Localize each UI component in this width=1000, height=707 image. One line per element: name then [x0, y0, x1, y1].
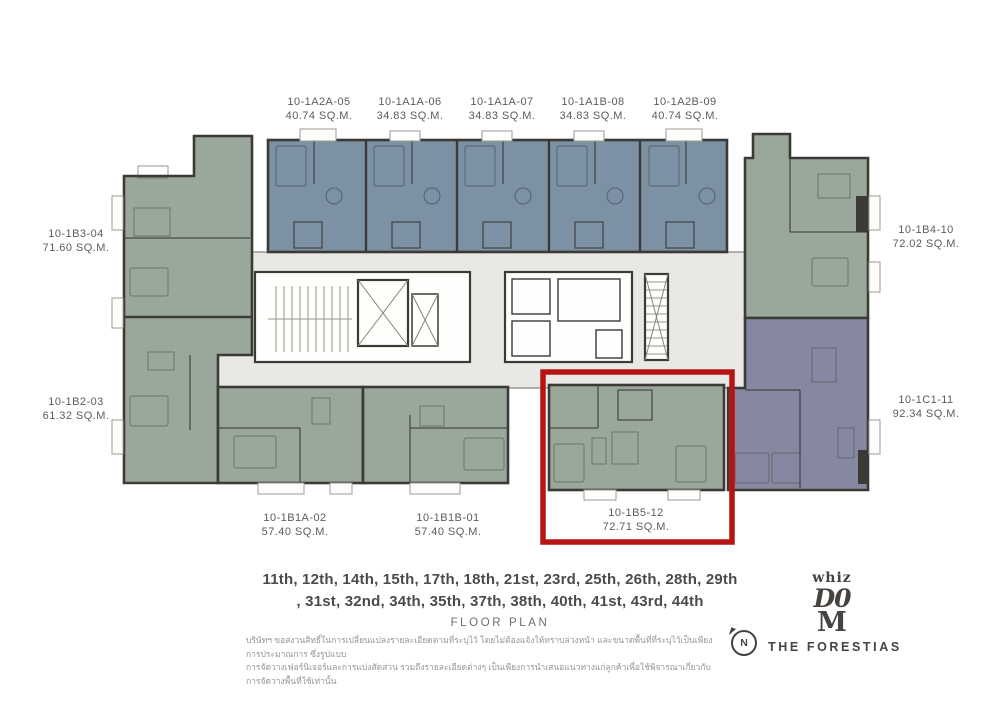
- unit-area: 34.83 SQ.M.: [469, 110, 536, 124]
- unit-label-10-1C1-11[interactable]: 10-1C1-11 92.34 SQ.M.: [893, 394, 960, 421]
- logo-line-m: M: [770, 609, 894, 636]
- unit-id: 10-1A2A-05: [286, 96, 353, 110]
- unit-area: 40.74 SQ.M.: [286, 110, 353, 124]
- unit-id: 10-1B3-04: [43, 228, 110, 242]
- unit-region-10-1B1A-02[interactable]: [218, 387, 363, 483]
- floor-plan-page: 10-1A2A-05 40.74 SQ.M. 10-1A1A-06 34.83 …: [0, 0, 1000, 707]
- core-left-block: [255, 272, 470, 362]
- unit-label-10-1B5-12[interactable]: 10-1B5-12 72.71 SQ.M.: [603, 507, 670, 534]
- unit-region-10-1B5-12[interactable]: [549, 385, 724, 490]
- unit-area: 57.40 SQ.M.: [415, 526, 482, 540]
- unit-id: 10-1B1A-02: [262, 512, 329, 526]
- shaft-block-top-right: [856, 196, 867, 232]
- unit-id: 10-1B5-12: [603, 507, 670, 521]
- unit-area: 71.60 SQ.M.: [43, 242, 110, 256]
- compass-north-label: N: [740, 637, 748, 649]
- core-right-stair: [645, 274, 668, 360]
- unit-id: 10-1A1A-06: [377, 96, 444, 110]
- disclaimer-line-1: บริษัทฯ ขอสงวนสิทธิ์ในการเปลี่ยนแปลงรายล…: [246, 634, 722, 661]
- brand-name: THE FORESTIAS: [768, 640, 896, 654]
- unit-region-10-1B1B-01[interactable]: [363, 387, 508, 483]
- whizdom-logo: whiz D0 M: [770, 571, 894, 636]
- disclaimer: บริษัทฯ ขอสงวนสิทธิ์ในการเปลี่ยนแปลงรายล…: [246, 634, 722, 688]
- unit-label-10-1B4-10[interactable]: 10-1B4-10 72.02 SQ.M.: [893, 224, 960, 251]
- logo-line-whiz: whiz: [770, 571, 894, 585]
- unit-area: 34.83 SQ.M.: [377, 110, 444, 124]
- unit-id: 10-1C1-11: [893, 394, 960, 408]
- north-compass-icon: N: [731, 630, 757, 656]
- unit-region-10-1B4-10[interactable]: [745, 134, 868, 318]
- unit-area: 34.83 SQ.M.: [560, 110, 627, 124]
- core-right-block: [505, 272, 632, 362]
- unit-area: 61.32 SQ.M.: [43, 410, 110, 424]
- shaft-block-bottom-right: [858, 450, 868, 484]
- unit-label-10-1A2B-09[interactable]: 10-1A2B-09 40.74 SQ.M.: [652, 96, 719, 123]
- unit-label-10-1B1A-02[interactable]: 10-1B1A-02 57.40 SQ.M.: [262, 512, 329, 539]
- unit-area: 92.34 SQ.M.: [893, 408, 960, 422]
- unit-region-10-1C1-11[interactable]: [728, 318, 868, 490]
- unit-label-10-1A1B-08[interactable]: 10-1A1B-08 34.83 SQ.M.: [560, 96, 627, 123]
- unit-label-10-1A2A-05[interactable]: 10-1A2A-05 40.74 SQ.M.: [286, 96, 353, 123]
- compass-pointer: [729, 627, 736, 636]
- disclaimer-line-2: การจัดวางเฟอร์นิเจอร์และการแบ่งสัดส่วน ร…: [246, 661, 722, 688]
- unit-label-10-1A1A-06[interactable]: 10-1A1A-06 34.83 SQ.M.: [377, 96, 444, 123]
- unit-id: 10-1A1B-08: [560, 96, 627, 110]
- unit-id: 10-1B4-10: [893, 224, 960, 238]
- unit-id: 10-1B1B-01: [415, 512, 482, 526]
- unit-id: 10-1A2B-09: [652, 96, 719, 110]
- unit-id: 10-1A1A-07: [469, 96, 536, 110]
- unit-area: 72.02 SQ.M.: [893, 238, 960, 252]
- unit-label-10-1B2-03[interactable]: 10-1B2-03 61.32 SQ.M.: [43, 396, 110, 423]
- unit-area: 57.40 SQ.M.: [262, 526, 329, 540]
- unit-label-10-1A1A-07[interactable]: 10-1A1A-07 34.83 SQ.M.: [469, 96, 536, 123]
- unit-area: 40.74 SQ.M.: [652, 110, 719, 124]
- unit-id: 10-1B2-03: [43, 396, 110, 410]
- unit-region-top-blue-band[interactable]: [268, 140, 727, 252]
- unit-label-10-1B1B-01[interactable]: 10-1B1B-01 57.40 SQ.M.: [415, 512, 482, 539]
- unit-area: 72.71 SQ.M.: [603, 521, 670, 535]
- unit-label-10-1B3-04[interactable]: 10-1B3-04 71.60 SQ.M.: [43, 228, 110, 255]
